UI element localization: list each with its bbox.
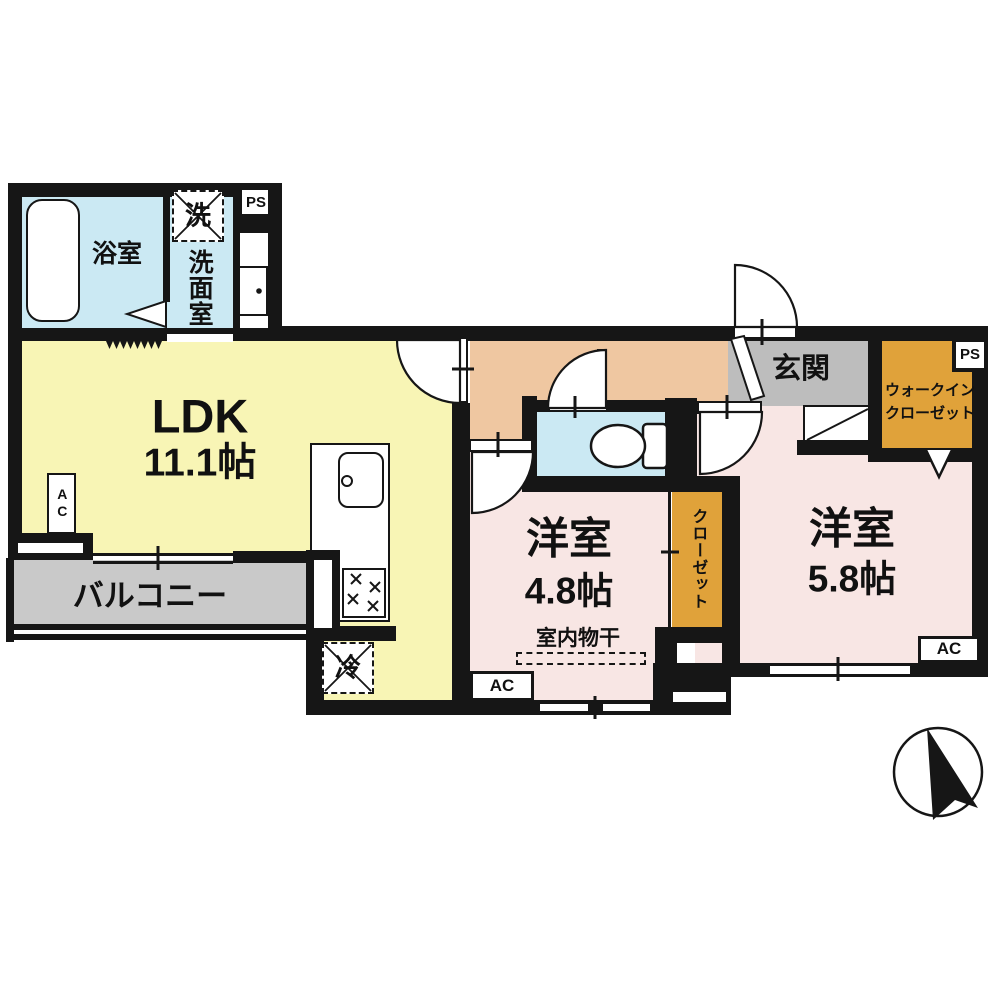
- wall-closet-bottom: [655, 627, 740, 643]
- bathtub: [26, 199, 80, 322]
- bedroom-center-size-label: 4.8帖: [525, 573, 613, 612]
- kitchen-stove: [342, 568, 386, 618]
- indoor-drying-bar: [516, 652, 646, 665]
- wall-toilet-bottom: [522, 476, 740, 492]
- ac-bedroom-right-label: AC: [937, 640, 962, 658]
- balcony-end-window: [314, 560, 332, 628]
- floor-plan-canvas: 浴室 洗面室 洗 PS LDK 11.1帖 AC バルコニー 冷 玄関 ウォーク…: [0, 0, 1000, 1000]
- entrance-door-arc: [735, 265, 797, 327]
- bedroom-right-window: [770, 666, 910, 674]
- wall-bath-washroom: [163, 197, 170, 302]
- toilet-floor: [537, 412, 665, 476]
- ldk-low-window: [18, 543, 83, 553]
- toilet-door-leaf: [597, 349, 607, 409]
- closet-slide-line: [668, 492, 671, 628]
- step-block-window: [673, 692, 726, 702]
- bath-label: 浴室: [92, 241, 142, 267]
- washroom-entry-opening: [167, 334, 233, 342]
- wall-window-right-seg: [233, 551, 310, 563]
- kitchen-sink: [338, 452, 384, 508]
- closet-label: クローゼット: [689, 508, 706, 610]
- ps-right-label: PS: [960, 347, 980, 363]
- washing-machine-label: 洗: [185, 202, 211, 229]
- balcony-window-line-b: [93, 561, 233, 564]
- balcony-rail-bottom-b: [6, 634, 322, 640]
- ac-bedroom-center-label: AC: [490, 677, 515, 695]
- entrance-door-leaf: [733, 326, 797, 339]
- wall-ldk-hall: [452, 403, 470, 702]
- bedroom-center-door-leaf: [469, 439, 533, 452]
- entrance-label: 玄関: [772, 354, 830, 384]
- indoor-drying-label: 室内物干: [536, 628, 620, 650]
- bedroom-right-door-leaf: [697, 401, 762, 414]
- washroom-label: 洗面室: [186, 249, 212, 327]
- wall-wic-bottom: [868, 448, 972, 462]
- balcony-window-line-a: [93, 553, 233, 556]
- vanity-cabinet: [238, 266, 268, 316]
- bedroom-center-window-b: [603, 704, 650, 711]
- ldk-hall-door-leaf: [454, 337, 468, 403]
- ldk-name-label: LDK: [152, 391, 249, 440]
- wall-shoebox-nook: [797, 440, 877, 455]
- wic-label-line1: ウォークイン: [885, 383, 975, 399]
- compass-circle: [894, 728, 982, 816]
- bedroom-center-window-a: [540, 704, 588, 711]
- compass-north-arrow: [927, 728, 978, 820]
- ldk-size-label: 11.1帖: [144, 444, 257, 485]
- bedroom-right-size-label: 5.8帖: [808, 561, 896, 600]
- balcony-rail-bottom-a: [6, 624, 322, 630]
- balcony-rail-left: [6, 558, 14, 642]
- bedroom-right-name-label: 洋室: [809, 507, 895, 552]
- wall-left-outer: [8, 183, 22, 553]
- ps-top-label: PS: [246, 195, 266, 211]
- refrigerator-label: 冷: [335, 654, 361, 681]
- shoe-cabinet: [803, 405, 872, 443]
- bedroom-center-name-label: 洋室: [526, 517, 612, 562]
- wall-right-outer: [972, 326, 988, 677]
- wic-label-line2: クローゼット: [885, 406, 975, 422]
- ac-ldk-label: AC: [55, 486, 70, 520]
- balcony-label: バルコニー: [73, 581, 227, 614]
- wall-bathsec-bottom: [8, 328, 282, 341]
